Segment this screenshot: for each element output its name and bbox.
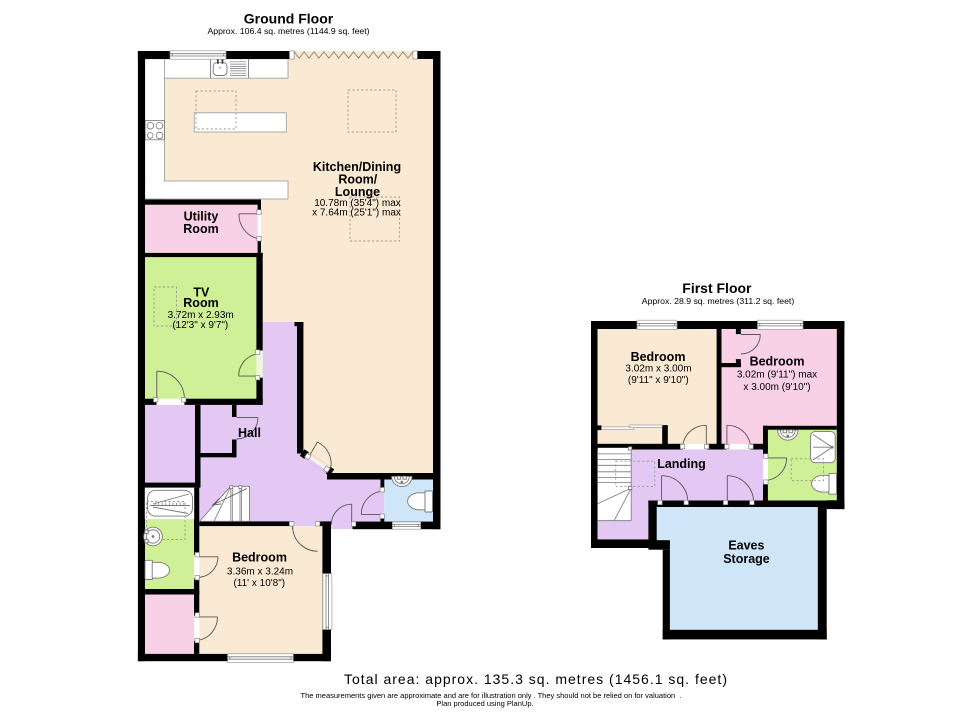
svg-text:(11' x 10'8"): (11' x 10'8") [233, 578, 285, 589]
svg-text:3.36m x 3.24m: 3.36m x 3.24m [227, 566, 293, 577]
svg-text:Approx. 28.9 sq. metres (311.2: Approx. 28.9 sq. metres (311.2 sq. feet) [642, 296, 795, 306]
svg-text:Eaves: Eaves [728, 539, 764, 553]
svg-text:Landing: Landing [657, 457, 706, 471]
svg-text:(9'11" x 9'10"): (9'11" x 9'10") [628, 375, 689, 386]
svg-text:Approx. 106.4 sq. metres (1144: Approx. 106.4 sq. metres (1144.9 sq. fee… [207, 26, 369, 36]
svg-text:Lounge: Lounge [335, 185, 380, 199]
svg-text:Bedroom: Bedroom [232, 550, 287, 564]
svg-text:x 3.00m (9'10"): x 3.00m (9'10") [743, 382, 810, 393]
svg-text:Bedroom: Bedroom [631, 350, 686, 364]
svg-text:(12'3" x 9'7"): (12'3" x 9'7") [172, 320, 228, 331]
svg-text:Total area: approx. 135.3 sq.: Total area: approx. 135.3 sq. metres (14… [344, 671, 728, 687]
svg-text:3.02m (9'11") max: 3.02m (9'11") max [737, 370, 817, 381]
svg-text:Bedroom: Bedroom [750, 354, 805, 368]
svg-text:Room: Room [183, 296, 218, 310]
svg-text:Room: Room [183, 222, 218, 236]
svg-text:x 7.64m (25'1") max: x 7.64m (25'1") max [312, 208, 401, 219]
svg-text:Storage: Storage [723, 552, 770, 566]
svg-text:Hall: Hall [238, 426, 261, 440]
svg-text:First Floor: First Floor [682, 280, 752, 296]
svg-text:3.02m x 3.00m: 3.02m x 3.00m [625, 363, 691, 374]
svg-text:Plan produced using PlanUp.: Plan produced using PlanUp. [436, 699, 533, 708]
svg-text:Ground Floor: Ground Floor [244, 11, 334, 27]
